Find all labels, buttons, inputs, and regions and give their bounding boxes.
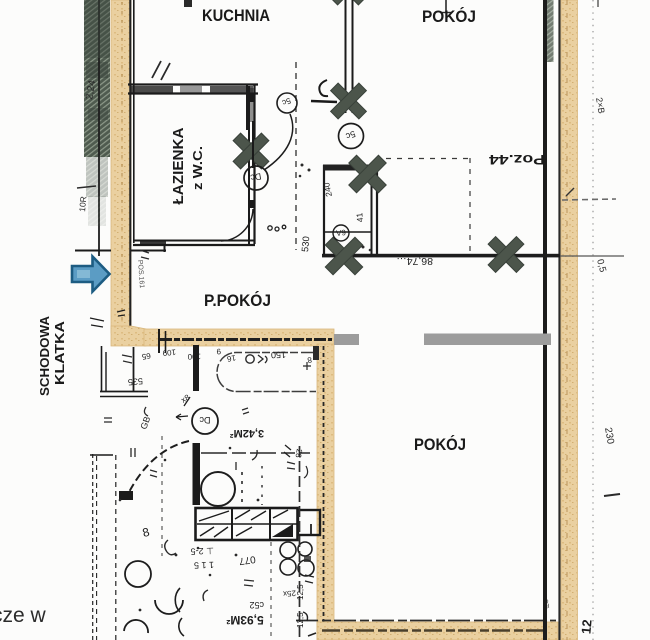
svg-text:1 1 5: 1 1 5: [194, 560, 214, 571]
svg-text:535: 535: [127, 376, 143, 387]
svg-text:Dc: Dc: [249, 171, 262, 183]
svg-text:12,5: 12,5: [296, 612, 305, 628]
svg-text:z W.C.: z W.C.: [191, 146, 205, 190]
svg-text:86,74…: 86,74…: [396, 255, 433, 267]
svg-text:12: 12: [578, 619, 594, 635]
svg-text:41: 41: [354, 212, 365, 223]
svg-text:12,5: 12,5: [296, 584, 305, 600]
svg-text:3,42M²: 3,42M²: [230, 427, 265, 439]
svg-text:5,93M²: 5,93M²: [226, 613, 263, 627]
svg-text:ŁAZIENKA: ŁAZIENKA: [170, 127, 187, 204]
svg-text:530: 530: [300, 236, 312, 253]
svg-text:POKÓJ: POKÓJ: [422, 7, 476, 26]
svg-text:KUCHNIA: KUCHNIA: [202, 6, 270, 25]
svg-text:100: 100: [187, 352, 201, 361]
svg-text:⊥ 2-5: ⊥ 2-5: [190, 546, 214, 557]
svg-text:150: 150: [271, 350, 286, 361]
svg-text:POKÓJ: POKÓJ: [414, 435, 466, 454]
svg-text:6A: 6A: [335, 228, 346, 238]
svg-text:SCHODOWA: SCHODOWA: [37, 315, 52, 396]
svg-text:KLATKA: KLATKA: [52, 320, 67, 385]
svg-text:Dc: Dc: [199, 415, 210, 425]
svg-text:25x: 25x: [283, 588, 297, 598]
svg-text:Poz.44: Poz.44: [489, 152, 545, 168]
svg-text:P.POKÓJ: P.POKÓJ: [204, 291, 271, 310]
svg-text:cze w: cze w: [0, 604, 47, 627]
svg-text:c52: c52: [249, 600, 264, 610]
svg-text:109: 109: [162, 347, 177, 357]
svg-text:10R: 10R: [77, 196, 88, 212]
